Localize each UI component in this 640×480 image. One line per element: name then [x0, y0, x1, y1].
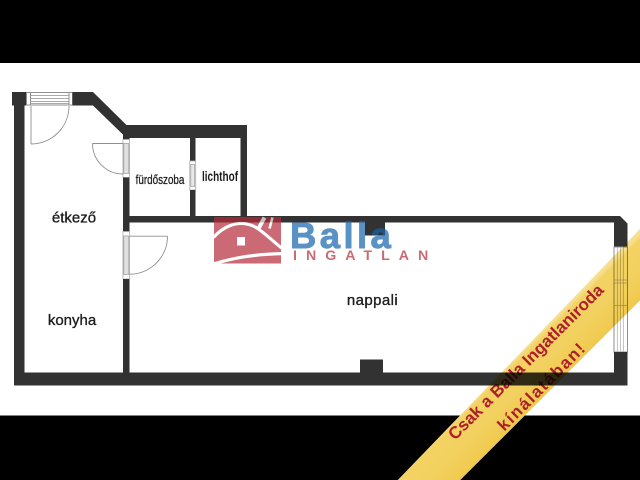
svg-text:lichthof: lichthof [202, 168, 238, 184]
svg-text:nappali: nappali [347, 292, 398, 309]
svg-text:étkező: étkező [52, 210, 96, 227]
svg-text:INGATLAN: INGATLAN [293, 248, 437, 264]
svg-text:fürdőszoba: fürdőszoba [136, 174, 185, 188]
svg-text:konyha: konyha [48, 312, 97, 329]
